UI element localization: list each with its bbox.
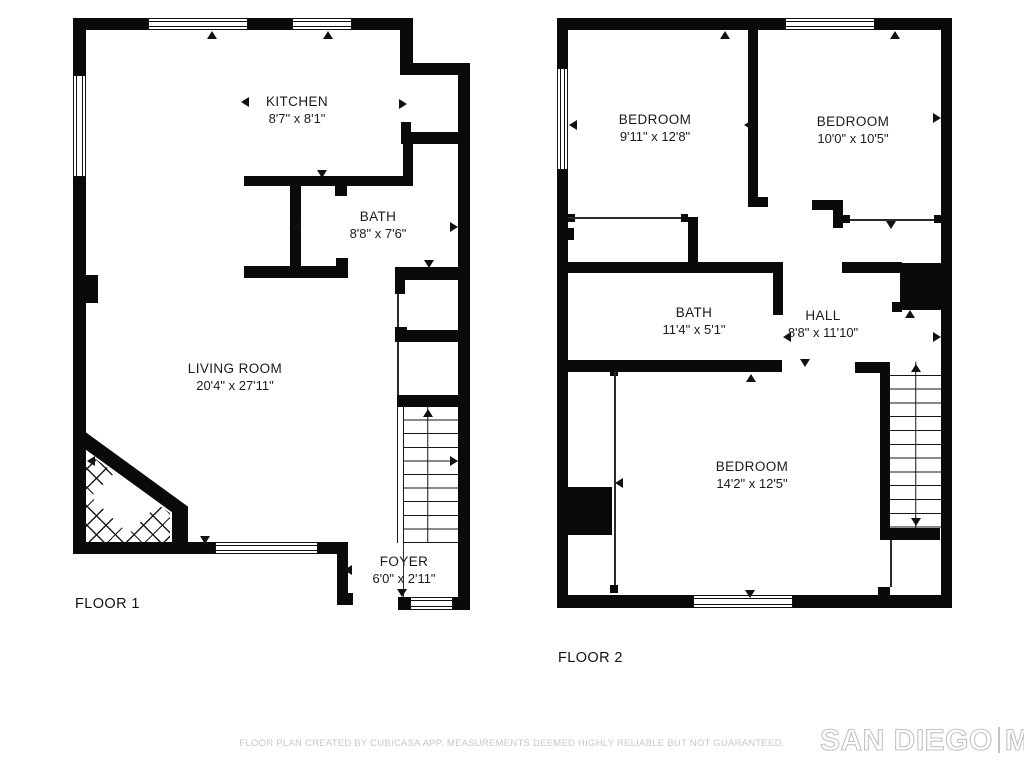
wall — [842, 262, 902, 273]
wall — [885, 528, 940, 540]
partition-line — [890, 540, 892, 587]
wall — [610, 585, 618, 593]
window — [73, 75, 86, 177]
wall — [688, 217, 698, 262]
wall — [748, 30, 758, 207]
wall — [934, 215, 941, 223]
door-arrow-icon — [800, 359, 810, 367]
wall — [401, 132, 458, 144]
partition-line — [397, 294, 399, 327]
room-label-bath: BATH8'8" x 7'6" — [350, 208, 407, 242]
wall — [892, 302, 902, 312]
room-name: BEDROOM — [716, 458, 789, 475]
room-label-bedroom: BEDROOM10'0" x 10'5" — [817, 113, 890, 147]
wall — [557, 18, 952, 30]
stair-up-arrow-icon — [911, 364, 921, 372]
door-arrow-icon — [323, 31, 333, 39]
partition-line — [568, 217, 681, 219]
window — [292, 18, 352, 30]
wall — [395, 267, 458, 280]
room-name: HALL — [788, 307, 858, 324]
door-arrow-icon — [424, 260, 434, 268]
window — [785, 18, 875, 30]
mls-logo: SAN DIEGOMLS — [820, 724, 1024, 758]
door-arrow-icon — [317, 170, 327, 178]
staircase — [890, 362, 941, 528]
door-arrow-icon — [744, 120, 752, 130]
room-dimensions: 20'4" x 27'11" — [188, 377, 282, 394]
room-name: BEDROOM — [619, 111, 692, 128]
partition-line — [397, 342, 399, 395]
room-name: BATH — [662, 304, 725, 321]
door-arrow-icon — [615, 478, 623, 488]
room-label-bath: BATH11'4" x 5'1" — [662, 304, 725, 338]
floor2-title: FLOOR 2 — [558, 650, 623, 666]
door-arrow-icon — [905, 310, 915, 318]
room-label-foyer: FOYER6'0" x 2'11" — [372, 553, 435, 587]
door-arrow-icon — [745, 590, 755, 598]
window — [410, 597, 453, 610]
room-name: BATH — [350, 208, 407, 225]
door-arrow-icon — [241, 97, 249, 107]
staircase — [397, 407, 458, 543]
stair-direction-line — [915, 362, 917, 528]
wall — [900, 263, 947, 310]
room-label-hall: HALL8'8" x 11'10" — [788, 307, 858, 341]
wall — [172, 507, 188, 542]
room-dimensions: 11'4" x 5'1" — [662, 321, 725, 338]
wall — [567, 487, 612, 535]
stair-down-arrow-icon — [911, 518, 921, 526]
door-arrow-icon — [344, 565, 352, 575]
wall — [335, 186, 347, 196]
stair-direction-line — [427, 407, 429, 543]
stair-up-arrow-icon — [423, 409, 433, 417]
room-dimensions: 8'8" x 7'6" — [350, 225, 407, 242]
door-arrow-icon — [397, 589, 407, 597]
room-dimensions: 9'11" x 12'8" — [619, 128, 692, 145]
room-name: LIVING ROOM — [188, 360, 282, 377]
wall — [878, 587, 890, 600]
room-dimensions: 8'7" x 8'1" — [266, 110, 328, 127]
room-dimensions: 14'2" x 12'5" — [716, 475, 789, 492]
wall — [337, 593, 353, 605]
window — [148, 18, 248, 30]
wall — [557, 262, 783, 273]
wall — [407, 330, 458, 342]
door-arrow-icon — [933, 113, 941, 123]
floor2-plan — [557, 18, 952, 608]
footer-disclaimer: FLOOR PLAN CREATED BY CUBICASA APP. MEAS… — [239, 738, 784, 749]
room-label-bedroom: BEDROOM14'2" x 12'5" — [716, 458, 789, 492]
window — [215, 542, 318, 554]
mls-logo-separator — [998, 727, 1000, 753]
wall — [842, 215, 850, 223]
door-arrow-icon — [450, 222, 458, 232]
door-arrow-icon — [87, 456, 95, 466]
room-label-bedroom: BEDROOM9'11" x 12'8" — [619, 111, 692, 145]
room-label-living-room: LIVING ROOM20'4" x 27'11" — [188, 360, 282, 394]
room-label-kitchen: KITCHEN8'7" x 8'1" — [266, 93, 328, 127]
room-name: BEDROOM — [817, 113, 890, 130]
wall — [773, 263, 783, 315]
wall — [557, 360, 782, 372]
door-arrow-icon — [933, 332, 941, 342]
door-arrow-icon — [890, 31, 900, 39]
wall — [458, 66, 470, 610]
room-dimensions: 6'0" x 2'11" — [372, 570, 435, 587]
wall — [395, 280, 405, 294]
door-arrow-icon — [207, 31, 217, 39]
wall — [336, 258, 348, 266]
door-arrow-icon — [399, 99, 407, 109]
door-arrow-icon — [746, 374, 756, 382]
wall — [85, 275, 98, 303]
room-dimensions: 8'8" x 11'10" — [788, 324, 858, 341]
floor1-title: FLOOR 1 — [75, 596, 140, 612]
room-name: FOYER — [372, 553, 435, 570]
door-arrow-icon — [569, 120, 577, 130]
window — [693, 595, 793, 608]
wall — [244, 266, 348, 278]
room-name: KITCHEN — [266, 93, 328, 110]
wall — [941, 18, 952, 608]
mls-logo-mls: MLS — [1005, 724, 1024, 757]
wall — [395, 327, 407, 342]
window — [557, 68, 568, 170]
wall — [758, 197, 768, 207]
floorplan-canvas: FLOOR 1 FLOOR 2 FLOOR PLAN CREATED BY CU… — [0, 0, 1024, 768]
wall — [880, 362, 890, 540]
door-arrow-icon — [720, 31, 730, 39]
door-arrow-icon — [886, 221, 896, 229]
door-arrow-icon — [200, 536, 210, 544]
wall — [568, 228, 574, 240]
mls-logo-sandiego: SAN DIEGO — [820, 724, 993, 757]
stair-stringer — [397, 407, 404, 543]
wall — [290, 186, 301, 278]
room-dimensions: 10'0" x 10'5" — [817, 130, 890, 147]
door-arrow-icon — [292, 222, 300, 232]
wall — [397, 395, 458, 407]
wall — [681, 214, 688, 222]
wall — [833, 200, 843, 228]
